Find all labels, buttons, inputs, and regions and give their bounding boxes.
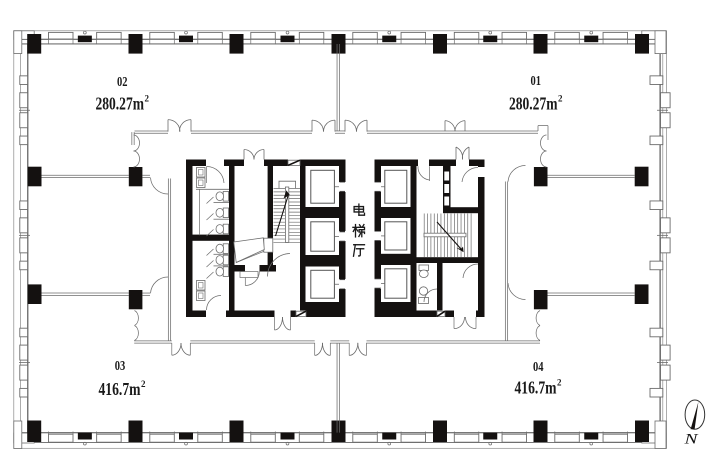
svg-text:04: 04 bbox=[533, 360, 544, 375]
svg-text:2: 2 bbox=[141, 379, 146, 389]
svg-text:2: 2 bbox=[145, 94, 150, 104]
svg-text:2: 2 bbox=[558, 94, 563, 104]
svg-text:N: N bbox=[683, 432, 699, 448]
svg-text:416.7m: 416.7m bbox=[515, 378, 557, 398]
svg-text:01: 01 bbox=[531, 74, 542, 89]
svg-text:416.7m: 416.7m bbox=[99, 379, 141, 399]
svg-text:280.27m: 280.27m bbox=[96, 94, 145, 114]
svg-text:2: 2 bbox=[557, 378, 562, 388]
svg-text:280.27m: 280.27m bbox=[509, 94, 558, 114]
svg-text:02: 02 bbox=[117, 75, 128, 90]
svg-text:03: 03 bbox=[115, 359, 126, 374]
